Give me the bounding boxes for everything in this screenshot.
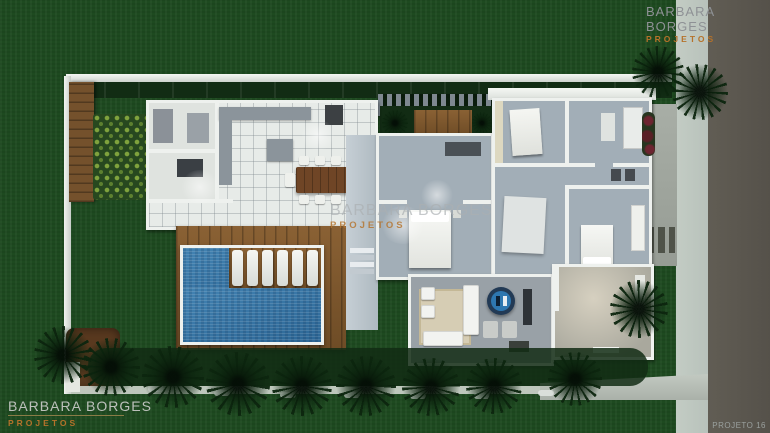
- inner-wall: [149, 149, 215, 153]
- bath-fixture: [623, 107, 643, 149]
- right-bedroom-wing: [492, 98, 652, 282]
- bed: [581, 225, 613, 269]
- render-canvas: BARBARA BORGES PROJETOS BARBARA BORGES P…: [0, 0, 770, 433]
- corridor-cabinet: [625, 169, 635, 181]
- brand-tagline: PROJETOS: [8, 418, 152, 428]
- bed: [509, 108, 542, 156]
- property-wall-top: [66, 74, 672, 82]
- stair-step: [350, 248, 374, 253]
- armchair: [502, 321, 517, 338]
- corridor-cabinet: [611, 169, 621, 181]
- dining-chair: [299, 195, 309, 204]
- watermark-bottom-left: BARBARA BORGES PROJETOS: [8, 398, 152, 428]
- vegetable-garden: [93, 114, 153, 200]
- dining-chair: [331, 156, 341, 165]
- project-label: PROJETO 16: [712, 421, 766, 430]
- stair-step: [350, 255, 374, 260]
- inner-wall: [495, 163, 595, 167]
- stair-landing: [502, 196, 547, 254]
- road: [708, 0, 770, 433]
- pool-lounger: [307, 250, 318, 286]
- laundry-cabinet: [153, 109, 173, 143]
- light-glow: [180, 170, 220, 204]
- storage-cabinet: [187, 113, 209, 143]
- pool: [180, 245, 324, 345]
- kitchen-counter-top: [219, 107, 311, 120]
- dining-chair: [285, 173, 295, 187]
- red-shrub: [642, 112, 655, 156]
- gate-post: [658, 227, 665, 253]
- gate-post: [669, 227, 675, 253]
- coffee-table-detail: [503, 296, 507, 306]
- dresser: [631, 205, 645, 251]
- pool-deck-notch: [229, 248, 321, 288]
- stair-step: [350, 269, 374, 274]
- brand-name: BARBARA BORGES: [330, 202, 493, 220]
- dining-chair: [299, 156, 309, 165]
- wooden-gate: [69, 82, 94, 202]
- hallway: [346, 135, 378, 330]
- brand-tagline: PROJETOS: [646, 34, 764, 44]
- brand-tagline: PROJETOS: [330, 220, 493, 231]
- pool-lounger: [262, 250, 273, 286]
- sofa: [423, 331, 463, 346]
- bath-fixture: [601, 113, 615, 141]
- watermark-center: BARBARA BORGES PROJETOS: [330, 202, 493, 231]
- brand-underline: [8, 415, 124, 416]
- armchair: [421, 287, 435, 300]
- wardrobe: [445, 142, 481, 156]
- pool-water-main: [183, 288, 321, 342]
- armchair: [483, 321, 498, 338]
- tv-panel: [523, 289, 532, 325]
- inner-wall: [565, 101, 569, 163]
- brand-name: BARBARA BORGES: [646, 4, 764, 34]
- pool-lounger: [247, 250, 258, 286]
- sofa: [463, 285, 479, 335]
- watermark-top-right: BARBARA BORGES PROJETOS: [646, 4, 764, 44]
- kitchen-island: [267, 139, 293, 161]
- palm-tree: [82, 338, 140, 396]
- brand-name: BARBARA BORGES: [8, 398, 152, 414]
- dining-chair: [315, 195, 325, 204]
- dining-chair: [315, 156, 325, 165]
- coffee-table-top: [491, 291, 511, 311]
- light-glow: [300, 120, 336, 150]
- round-coffee-table: [487, 287, 515, 315]
- pool-lounger: [232, 250, 243, 286]
- pool-lounger: [277, 250, 288, 286]
- kitchen-counter-left: [219, 107, 232, 185]
- inner-wall: [613, 163, 649, 167]
- pool-lounger: [292, 250, 303, 286]
- coffee-table-detail: [496, 296, 500, 306]
- armchair: [421, 305, 435, 318]
- wall-accent: [495, 101, 503, 163]
- inner-wall: [555, 267, 559, 311]
- inner-wall: [565, 185, 649, 189]
- courtyard-plant: [472, 112, 492, 134]
- stair-step: [350, 262, 374, 267]
